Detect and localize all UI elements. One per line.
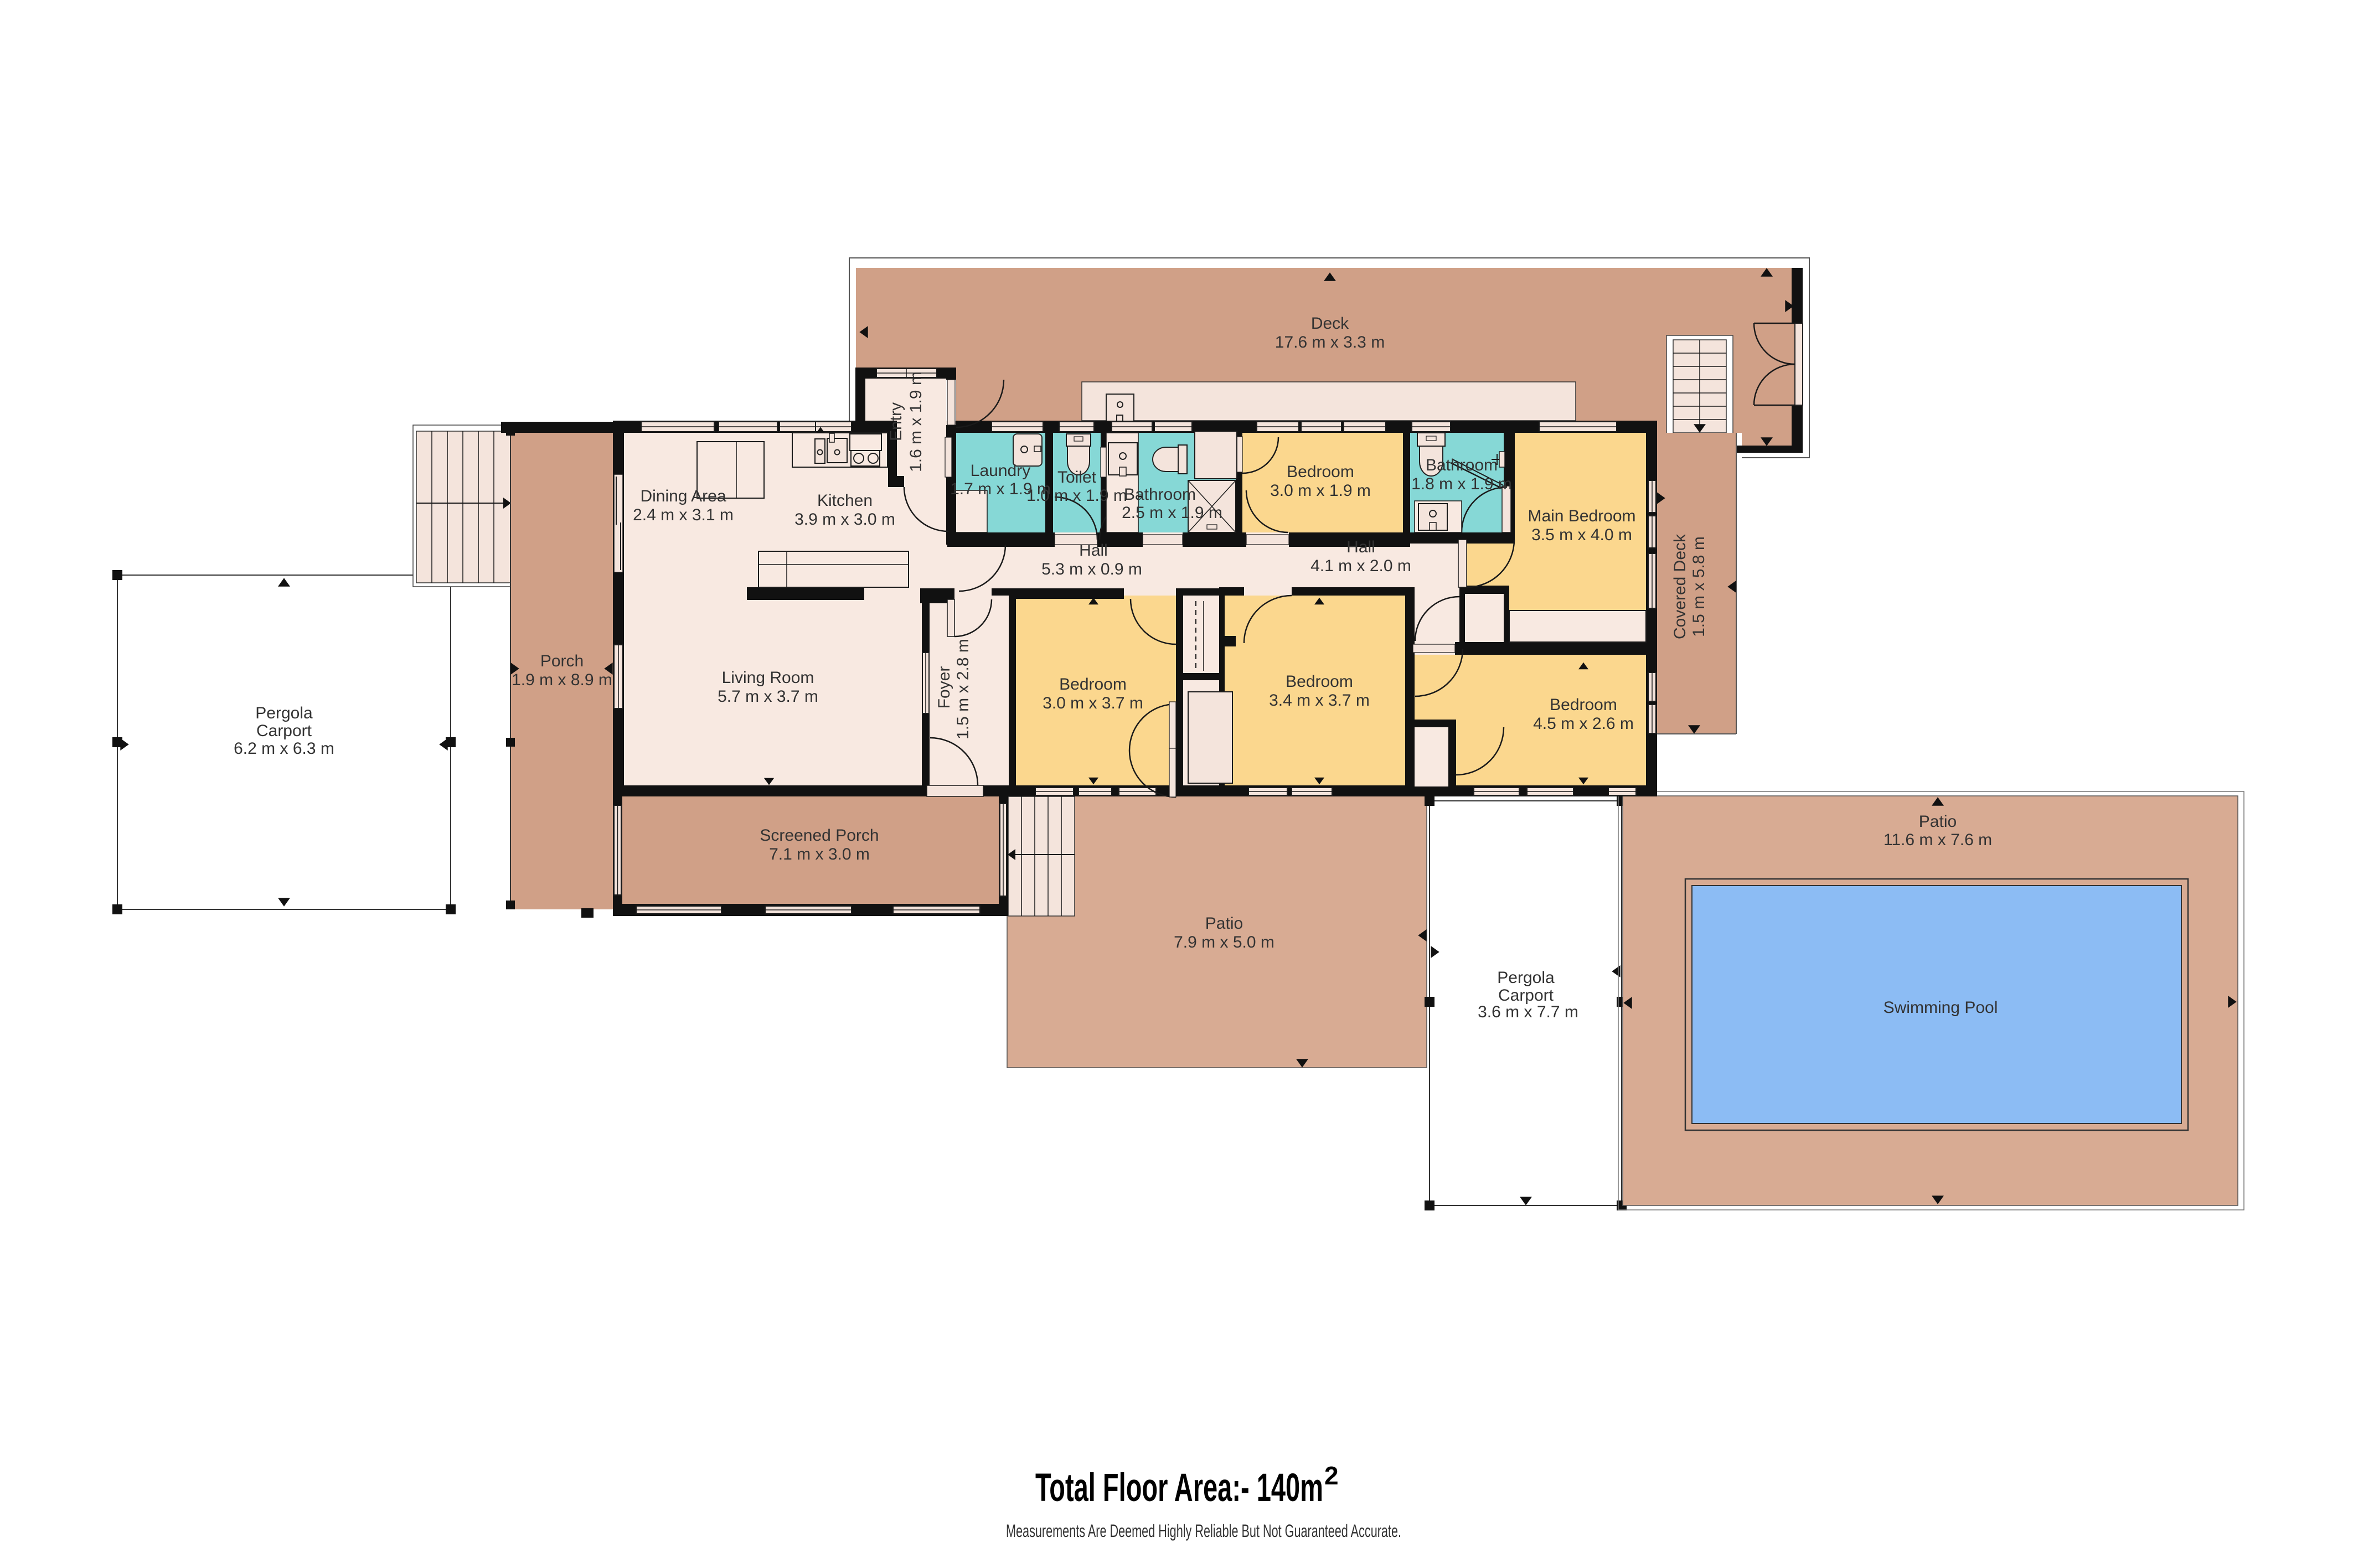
svg-text:Carport: Carport bbox=[1498, 986, 1554, 1005]
svg-text:Screened Porch: Screened Porch bbox=[760, 826, 879, 845]
svg-text:Foyer: Foyer bbox=[935, 666, 953, 709]
svg-text:17.6 m x 3.3 m: 17.6 m x 3.3 m bbox=[1275, 333, 1385, 351]
svg-text:Pergola: Pergola bbox=[255, 704, 313, 722]
svg-text:Main Bedroom: Main Bedroom bbox=[1528, 507, 1635, 525]
svg-text:1.9 m x 8.9 m: 1.9 m x 8.9 m bbox=[512, 671, 612, 689]
svg-text:Bedroom: Bedroom bbox=[1059, 675, 1127, 694]
svg-text:2: 2 bbox=[1324, 1461, 1339, 1490]
svg-text:Pergola: Pergola bbox=[1497, 969, 1555, 987]
svg-text:Patio: Patio bbox=[1919, 813, 1957, 831]
svg-text:Bathroom: Bathroom bbox=[1124, 485, 1196, 504]
svg-text:Measurements Are Deemed Highly: Measurements Are Deemed Highly Reliable … bbox=[1006, 1521, 1401, 1541]
svg-text:1.5 m x 5.8 m: 1.5 m x 5.8 m bbox=[1690, 536, 1708, 637]
svg-text:Dining Area: Dining Area bbox=[640, 487, 726, 505]
svg-text:Carport: Carport bbox=[256, 722, 312, 740]
svg-text:4.1 m x 2.0 m: 4.1 m x 2.0 m bbox=[1310, 557, 1411, 575]
svg-text:7.1 m x 3.0 m: 7.1 m x 3.0 m bbox=[769, 845, 870, 863]
svg-text:2.5 m x 1.9 m: 2.5 m x 1.9 m bbox=[1122, 504, 1222, 522]
svg-text:3.6 m x 7.7 m: 3.6 m x 7.7 m bbox=[1478, 1003, 1578, 1021]
svg-text:Swimming Pool: Swimming Pool bbox=[1884, 998, 1998, 1017]
svg-text:5.7 m x 3.7 m: 5.7 m x 3.7 m bbox=[718, 687, 818, 706]
svg-text:3.9 m x 3.0 m: 3.9 m x 3.0 m bbox=[794, 510, 895, 529]
svg-text:3.0 m x 3.7 m: 3.0 m x 3.7 m bbox=[1043, 694, 1143, 712]
svg-text:Covered Deck: Covered Deck bbox=[1671, 534, 1689, 639]
svg-text:Laundry: Laundry bbox=[971, 462, 1030, 480]
svg-text:Bedroom: Bedroom bbox=[1286, 672, 1353, 691]
svg-text:4.5 m x 2.6 m: 4.5 m x 2.6 m bbox=[1533, 715, 1634, 733]
svg-text:1.0 m x 1.9 m: 1.0 m x 1.9 m bbox=[1026, 487, 1127, 505]
svg-text:Patio: Patio bbox=[1205, 914, 1243, 933]
svg-text:1.6 m x 1.9 m: 1.6 m x 1.9 m bbox=[907, 371, 925, 472]
svg-text:Hall: Hall bbox=[1079, 541, 1108, 560]
svg-text:1.8 m x 1.9 m: 1.8 m x 1.9 m bbox=[1411, 475, 1512, 493]
svg-text:Living Room: Living Room bbox=[722, 669, 814, 687]
svg-text:Total Floor Area:- 140m: Total Floor Area:- 140m bbox=[1035, 1466, 1323, 1510]
svg-text:6.2 m x 6.3 m: 6.2 m x 6.3 m bbox=[234, 739, 334, 758]
svg-text:3.5 m x 4.0 m: 3.5 m x 4.0 m bbox=[1531, 526, 1632, 544]
svg-text:Kitchen: Kitchen bbox=[817, 491, 873, 510]
svg-text:1.5 m x 2.8 m: 1.5 m x 2.8 m bbox=[954, 639, 972, 739]
svg-text:Bedroom: Bedroom bbox=[1550, 696, 1617, 714]
svg-text:11.6 m x 7.6 m: 11.6 m x 7.6 m bbox=[1884, 831, 1992, 849]
svg-text:3.4 m x 3.7 m: 3.4 m x 3.7 m bbox=[1269, 691, 1370, 710]
svg-text:Bedroom: Bedroom bbox=[1287, 463, 1354, 481]
svg-text:Entry: Entry bbox=[887, 402, 905, 441]
svg-text:Porch: Porch bbox=[540, 652, 584, 670]
svg-text:2.4 m x 3.1 m: 2.4 m x 3.1 m bbox=[633, 506, 734, 524]
svg-text:5.3 m x 0.9 m: 5.3 m x 0.9 m bbox=[1041, 560, 1142, 578]
svg-text:7.9 m x 5.0 m: 7.9 m x 5.0 m bbox=[1174, 933, 1274, 951]
svg-text:Toilet: Toilet bbox=[1057, 468, 1097, 487]
svg-text:Deck: Deck bbox=[1311, 314, 1349, 333]
svg-text:Bathroom: Bathroom bbox=[1426, 456, 1498, 474]
svg-text:Hall: Hall bbox=[1346, 538, 1375, 556]
svg-text:3.0 m x 1.9 m: 3.0 m x 1.9 m bbox=[1270, 482, 1371, 500]
